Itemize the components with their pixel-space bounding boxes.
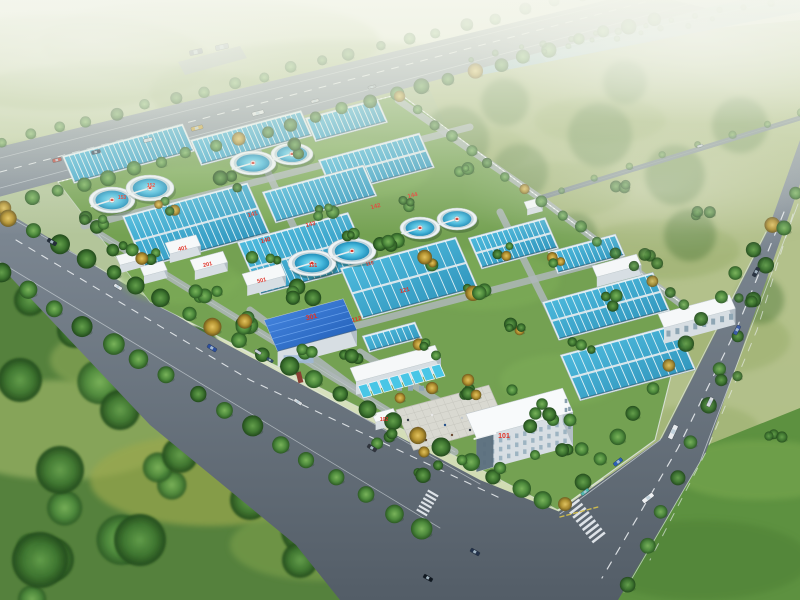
tree bbox=[575, 339, 586, 350]
tree bbox=[594, 452, 607, 465]
tree bbox=[190, 386, 206, 402]
tree bbox=[77, 249, 97, 269]
tree bbox=[216, 402, 233, 419]
tree bbox=[715, 374, 727, 386]
tree bbox=[242, 415, 263, 436]
tree bbox=[542, 407, 556, 421]
tree bbox=[103, 333, 125, 355]
tree bbox=[266, 254, 276, 264]
tree bbox=[237, 314, 252, 329]
tree bbox=[575, 442, 589, 456]
tree bbox=[746, 296, 758, 308]
tree bbox=[610, 429, 626, 445]
tree bbox=[506, 384, 517, 395]
tree bbox=[548, 258, 558, 268]
tree bbox=[127, 277, 145, 295]
tree bbox=[19, 281, 37, 299]
unit-label-gate-house: 102 bbox=[380, 417, 389, 423]
tree bbox=[395, 393, 406, 404]
tree bbox=[359, 400, 377, 418]
tree bbox=[764, 431, 773, 440]
tree bbox=[678, 299, 689, 310]
tree bbox=[517, 323, 526, 332]
tree bbox=[426, 382, 438, 394]
tree bbox=[432, 437, 451, 456]
tree bbox=[732, 371, 742, 381]
tree bbox=[304, 289, 321, 306]
tree bbox=[694, 312, 708, 326]
tree bbox=[182, 307, 196, 321]
tree bbox=[715, 291, 728, 304]
tree bbox=[345, 349, 359, 363]
tree bbox=[472, 286, 487, 301]
tree bbox=[298, 452, 314, 468]
tree bbox=[106, 244, 119, 257]
tree bbox=[431, 350, 441, 360]
tree bbox=[385, 505, 404, 524]
tree bbox=[386, 428, 397, 439]
tree bbox=[151, 289, 170, 308]
tree bbox=[684, 435, 698, 449]
unit-label-admin-building: 101 bbox=[498, 433, 510, 440]
tree bbox=[157, 366, 174, 383]
tree bbox=[107, 265, 122, 280]
haze-overlay bbox=[0, 0, 800, 260]
tree bbox=[647, 382, 660, 395]
tree bbox=[734, 293, 744, 303]
tree bbox=[203, 318, 221, 336]
tree bbox=[646, 275, 658, 287]
tree bbox=[601, 292, 611, 302]
tree bbox=[409, 427, 426, 444]
tree bbox=[306, 346, 318, 358]
tree bbox=[211, 286, 222, 297]
tree bbox=[670, 470, 685, 485]
tree bbox=[381, 235, 395, 249]
tree bbox=[640, 538, 656, 554]
tree bbox=[246, 251, 259, 264]
tree bbox=[757, 257, 774, 274]
tree bbox=[663, 359, 676, 372]
tree bbox=[280, 356, 299, 375]
tree bbox=[665, 287, 676, 298]
tree bbox=[534, 491, 552, 509]
tree bbox=[418, 446, 429, 457]
tree bbox=[411, 518, 433, 540]
tree bbox=[333, 386, 348, 401]
tree bbox=[358, 486, 375, 503]
tree bbox=[678, 335, 694, 351]
tree bbox=[46, 300, 63, 317]
tree bbox=[305, 370, 323, 388]
tree bbox=[530, 450, 540, 460]
treatment-plant-rendering: 1011022013014015011401411421431441211121… bbox=[0, 0, 800, 600]
tree bbox=[462, 374, 474, 386]
tree bbox=[558, 497, 572, 511]
tree bbox=[513, 479, 532, 498]
tree bbox=[471, 390, 482, 401]
tree bbox=[286, 291, 300, 305]
tree bbox=[776, 431, 787, 442]
tree bbox=[523, 419, 537, 433]
tree bbox=[126, 243, 139, 256]
tree bbox=[536, 398, 548, 410]
tree bbox=[629, 261, 639, 271]
tree bbox=[419, 342, 428, 351]
aerial-view-svg: 1011022013014015011401411421431441211121… bbox=[0, 0, 800, 600]
tree bbox=[654, 505, 668, 519]
tree bbox=[625, 406, 640, 421]
tree bbox=[129, 349, 149, 369]
tree bbox=[555, 443, 569, 457]
tree bbox=[189, 284, 203, 298]
tree bbox=[505, 324, 513, 332]
tree bbox=[492, 249, 502, 259]
tree bbox=[728, 266, 742, 280]
tree bbox=[72, 316, 93, 337]
tree bbox=[610, 289, 623, 302]
tree bbox=[713, 362, 726, 375]
tree bbox=[564, 414, 577, 427]
tree bbox=[501, 251, 511, 261]
tree bbox=[620, 577, 636, 593]
tree bbox=[417, 250, 432, 265]
tree bbox=[494, 462, 506, 474]
tree bbox=[328, 469, 344, 485]
tree bbox=[272, 436, 289, 453]
tree bbox=[505, 242, 513, 250]
tree bbox=[587, 345, 596, 354]
tree bbox=[457, 455, 468, 466]
tree bbox=[575, 474, 592, 491]
tree bbox=[433, 460, 443, 470]
tree bbox=[415, 468, 430, 483]
unit-label-clarifier-151: 151 bbox=[309, 263, 318, 269]
